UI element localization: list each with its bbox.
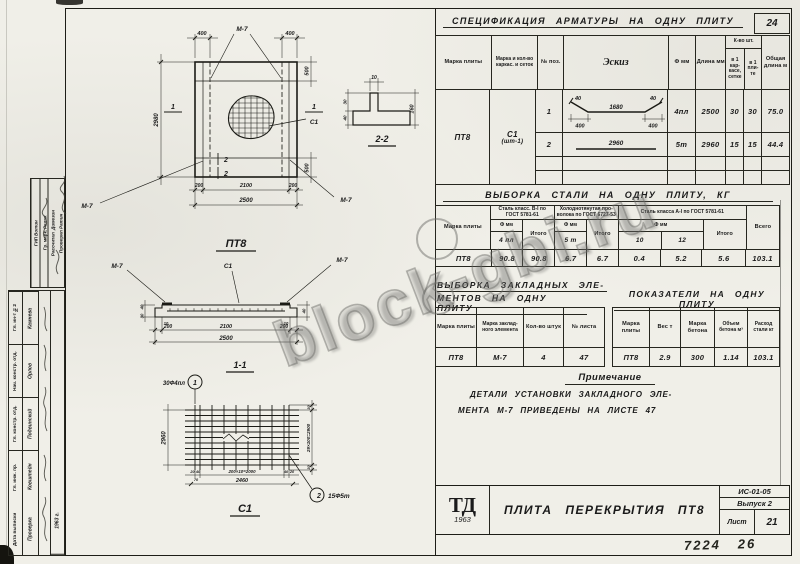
pos-number: 1: [193, 380, 197, 387]
break-gap: [223, 434, 249, 441]
note-line: МЕНТА М-7 ПРИВЕДЕНЫ НА ЛИСТЕ 47: [458, 406, 656, 415]
group-header: Сталь класса А-I по ГОСТ 5781-61: [619, 206, 746, 220]
bar-sketch: 2960: [562, 133, 667, 156]
section-1-1-texts: М-7 С1 М-7 40 30 40 10 10 200 2100 200 2…: [111, 257, 348, 370]
logo-monogram: ТД: [449, 496, 476, 515]
steel-table-title: ВЫБОРКА СТАЛИ НА ОДНУ ПЛИТУ, КГ: [443, 190, 773, 202]
drawing-title: ПЛИТА ПЕРЕКРЫТИЯ ПТ8: [490, 486, 719, 534]
section-1-1: [127, 265, 331, 372]
m7-callout: М-7: [236, 26, 248, 33]
col-header: К-во шт.: [726, 36, 761, 49]
dim: 40: [573, 96, 580, 102]
dim: 2980: [154, 113, 160, 128]
section-title: 2-2: [374, 134, 388, 144]
steel-weight: 6.7: [554, 250, 586, 266]
logo-year: 1963: [454, 515, 471, 524]
dim: 30: [307, 465, 311, 470]
group-header: Холоднотянутая про-волока по ГОСТ 6727-5…: [555, 206, 618, 220]
table-row: 2 2960 5т 2960 15 15 44.4: [536, 132, 789, 156]
dim: 500: [305, 66, 311, 75]
dim: 29×100=2900: [306, 423, 311, 453]
steel-weight: 90.8: [522, 250, 554, 266]
watermark-circle: [416, 218, 458, 260]
pos-number: 1: [536, 90, 562, 132]
scan-smudge-top: [56, 0, 83, 5]
dim: 20: [189, 470, 195, 474]
dim: 40: [283, 470, 289, 474]
group-header: Сталь класс. В-I по ГОСТ 5781-61: [491, 206, 554, 220]
dim: 20: [289, 470, 295, 474]
pos-number: 2: [536, 133, 562, 156]
table-row-empty: [536, 170, 789, 184]
col-header: Вес т: [649, 308, 680, 347]
spec-table-title: СПЕЦИФИКАЦИЯ АРМАТУРЫ НА ОДНУ ПЛИТУ: [443, 16, 743, 28]
pos-number: 2: [316, 493, 321, 500]
concrete-grade: 300: [680, 348, 714, 366]
col-header: Итого: [703, 220, 746, 249]
plan-texts: М-7 М-7 М-7 400 400 2980 500 500 200 210…: [81, 26, 352, 250]
title-block: ТД 1963 ПЛИТА ПЕРЕКРЫТИЯ ПТ8 ИС-01-05 Вы…: [435, 485, 790, 535]
dim: 30: [140, 313, 145, 318]
stamp-name: Камнева: [23, 291, 38, 344]
dim: 30: [343, 99, 348, 105]
steel-weight: 6.7: [586, 250, 618, 266]
col-header: в 1 пли-те: [744, 49, 762, 89]
total-length: 44.4: [761, 133, 789, 156]
mesh-ref: С1: [310, 119, 319, 126]
bar-callout: 30Ф4пл: [163, 381, 185, 387]
table-row: ПТ8 90.8 90.8 6.7 6.7 0.4 5.2 5.6 103.1: [436, 250, 779, 266]
col-header: Марка плиты: [613, 308, 649, 347]
stamp-label: Гл. инж. пр.: [9, 450, 22, 503]
stamp-label: Нач. констр. отд.: [9, 344, 22, 397]
m7-callout: М-7: [336, 257, 348, 264]
section-mark: 1: [171, 104, 175, 111]
dim: 400: [284, 31, 294, 37]
note-title: Примечание: [565, 372, 655, 385]
embed-mark: М-7: [476, 348, 523, 366]
plate-mark: ПТ8: [436, 90, 490, 184]
issue-number: Выпуск 2: [720, 498, 789, 510]
section-mark: 1: [312, 104, 316, 111]
dim: 40: [302, 308, 307, 314]
m7-callout: М-7: [340, 197, 352, 204]
steel-table: Марка плиты Сталь класс. В-I по ГОСТ 578…: [435, 205, 780, 267]
plate-mark: ПТ8: [436, 348, 476, 366]
col-header: Ф мм: [555, 220, 586, 232]
col-header: Эскиз: [563, 36, 667, 89]
col-header: Итого: [586, 220, 618, 249]
section-title: 1-1: [233, 360, 246, 370]
weight-value: 2.9: [649, 348, 680, 366]
m7-callout: М-7: [81, 203, 93, 210]
col-header: Итого: [522, 220, 554, 249]
embed-sheet-ref: 47: [563, 348, 604, 366]
dim: 2460: [235, 478, 248, 484]
col-header: Марка плиты: [436, 36, 491, 89]
sheet-number: 21: [755, 510, 789, 534]
mesh-c1-texts: 30Ф4пл 1 2 15Ф5т 2960 30 29×100=2900 30 …: [162, 380, 350, 515]
col-header: Общая длина м: [761, 36, 789, 89]
note-line: ДЕТАЛИ УСТАНОВКИ ЗАКЛАДНОГО ЭЛЕ-: [470, 390, 672, 399]
doc-code: ИС-01-05: [720, 486, 789, 498]
indicators-table: Марка плиты Вес т Марка бетона Объем бет…: [612, 307, 780, 367]
dim: 30: [307, 405, 311, 410]
dim: 200: [163, 324, 173, 330]
qty-plate: 30: [743, 90, 761, 132]
stamp-label: Гл. констр. отд.: [9, 397, 22, 450]
dim: 400: [647, 124, 657, 130]
col-header: Ф мм: [491, 220, 522, 232]
stamp-year: 1963 г.: [51, 488, 64, 555]
m7-callout: М-7: [111, 263, 123, 270]
dim: 200: [279, 324, 289, 330]
diameter-header: 10: [619, 232, 661, 249]
dim: 40: [648, 96, 655, 102]
dim: 2960: [607, 140, 623, 147]
length: 2960: [695, 133, 725, 156]
section-2-2-texts: 10 30 40 160 2-2: [343, 75, 416, 144]
steel-weight: 90.8: [491, 250, 523, 266]
qty-frame: 15: [725, 133, 743, 156]
plan-view: [100, 34, 334, 251]
dim: 70: [194, 478, 199, 482]
dim: 2100: [239, 183, 252, 189]
bar-callout: 15Ф5т: [328, 493, 350, 500]
concrete-volume: 1.14: [714, 348, 747, 366]
dim: 40: [195, 470, 201, 474]
mesh-mark-qty: (шт-1): [502, 139, 524, 145]
mesh-mark: С1: [507, 130, 518, 139]
table-row: ПТ8 2.9 300 1.14 103.1: [613, 348, 779, 366]
dim: 2100: [219, 324, 232, 330]
diameter-header: 5 т: [555, 232, 586, 249]
embed-table: Марка плиты Марка заклад-ного элемента К…: [435, 307, 605, 367]
col-header: Марка заклад-ного элемента: [476, 308, 523, 347]
bar-sketch: 40 1680 40 400 400: [562, 90, 667, 132]
dim: 40: [140, 304, 145, 310]
mesh-title: С1: [238, 503, 252, 515]
dim: 400: [574, 124, 584, 130]
org-logo: ТД 1963: [436, 486, 490, 534]
scanned-drawing-sheet: ГИП Вотин Гр. марк. Релик Рассчитал Диме…: [0, 0, 800, 564]
sheet-corner-number: 24: [754, 13, 790, 34]
dim: 400: [196, 31, 206, 37]
dim: 2960: [162, 431, 168, 446]
plate-mark: ПТ8: [613, 348, 649, 366]
watermark-circle: [422, 282, 455, 315]
m7-plate: [280, 303, 290, 306]
diameter: 4пл: [667, 90, 695, 132]
stamp-name: Ковштейн: [23, 450, 38, 503]
dim: 2500: [218, 336, 233, 342]
diameter: 5т: [667, 133, 695, 156]
stamp-lower-box: Гл. ин-т №2 Нач. констр. отд. Гл. констр…: [8, 290, 65, 556]
table-row-empty: [536, 156, 789, 170]
opening-hatch: [223, 92, 279, 142]
mesh-c1: [163, 375, 324, 516]
handwritten-number: 7224 26: [684, 536, 757, 553]
col-header: Всего: [746, 206, 779, 249]
stamp-name: Подвинский: [23, 397, 38, 450]
col-header: в 1 кар-касе, сетке: [726, 49, 743, 89]
col-header: Объем бетона м³: [714, 308, 747, 347]
qty-plate: 15: [743, 133, 761, 156]
frame-inner-line: [780, 200, 781, 486]
dim: 500: [305, 163, 311, 172]
stamp-name: Проверка: [23, 503, 38, 555]
stamp-signatures: [39, 291, 51, 554]
col-header: № поз.: [537, 36, 563, 89]
dim: 200×10=2000: [227, 469, 256, 474]
dim: 2500: [238, 198, 253, 204]
dim: 200: [288, 183, 298, 189]
dim: 160: [410, 104, 416, 113]
embed-qty: 4: [523, 348, 563, 366]
col-header: Марка и кол-во каркас. и сеток: [491, 36, 538, 89]
spec-table: Марка плиты Марка и кол-во каркас. и сет…: [435, 35, 790, 185]
table-row: ПТ8 М-7 4 47: [436, 348, 604, 366]
m7-plate: [162, 303, 172, 306]
col-header: Длина мм: [695, 36, 725, 89]
col-header: Марка бетона: [680, 308, 714, 347]
table-row: 1 40 1680 40: [536, 90, 789, 132]
steel-consumption: 103.1: [747, 348, 779, 366]
dim: 1680: [609, 105, 623, 111]
col-header: Ф мм: [619, 220, 703, 232]
mesh-ref: С1: [224, 263, 233, 270]
section-mark: 2: [223, 157, 228, 164]
diameter-header: 4 пл: [491, 232, 522, 249]
steel-weight: 0.4: [618, 250, 660, 266]
dim: 10: [371, 75, 377, 81]
stamp-label: Гл. ин-т №2: [9, 291, 22, 344]
stamp-label: Дата выписки: [9, 503, 22, 555]
total-length: 75.0: [761, 90, 789, 132]
dim: 40: [343, 115, 348, 122]
qty-frame: 30: [725, 90, 743, 132]
col-header: № листа: [563, 308, 604, 347]
dim: 200: [194, 183, 204, 189]
col-header: Ф мм: [668, 36, 696, 89]
col-header: Кол-во штук: [523, 308, 563, 347]
sheet-label: Лист: [720, 510, 755, 534]
col-header: Расход стали кг: [747, 308, 779, 347]
diameter-header: 12: [661, 232, 703, 249]
steel-total: 103.1: [745, 250, 779, 266]
paper-edge-line: [6, 0, 7, 564]
drawing-views: М-7 М-7 М-7 400 400 2980 500 500 200 210…: [65, 8, 437, 556]
steel-weight: 5.6: [701, 250, 745, 266]
plan-title: ПТ8: [226, 238, 248, 250]
length: 2500: [695, 90, 725, 132]
steel-weight: 5.2: [660, 250, 702, 266]
stamp-name: Орлов: [23, 344, 38, 397]
embed-table-title-line1: ВЫБОРКА ЗАКЛАДНЫХ ЭЛЕ-: [437, 280, 607, 292]
section-mark: 2: [223, 171, 228, 178]
